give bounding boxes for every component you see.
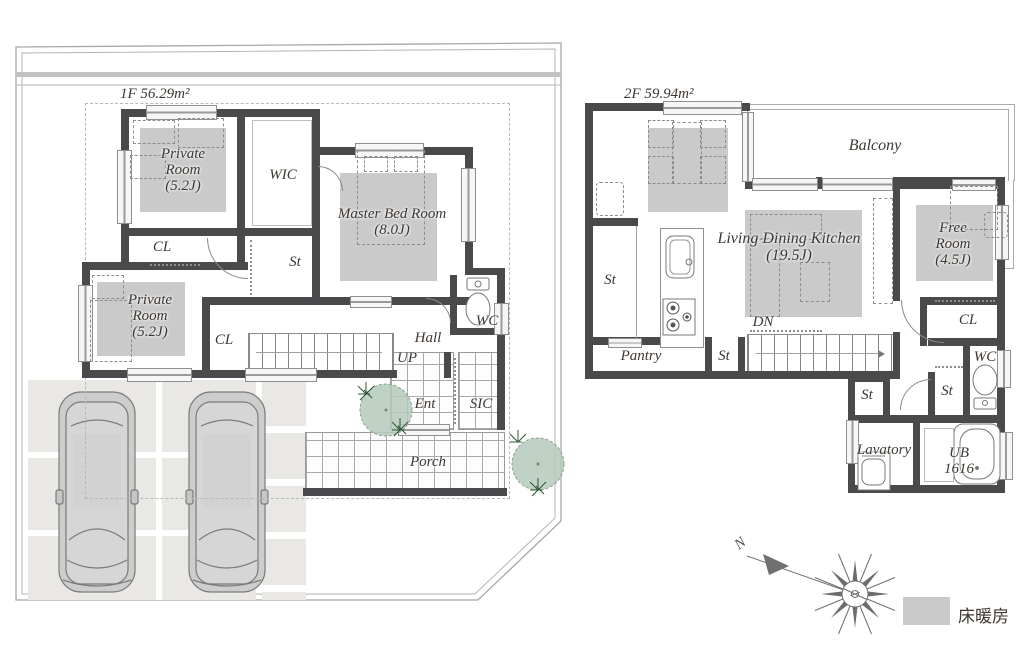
label-storage-left: St xyxy=(604,272,616,288)
label-closet-upper: CL xyxy=(153,239,171,255)
floor2-area-label: 2F 59.94m² xyxy=(624,86,694,102)
label-balcony: Balcony xyxy=(849,137,901,154)
label-wc-1f: WC xyxy=(476,313,499,329)
stair-handrail xyxy=(750,330,822,332)
tv-board xyxy=(873,198,893,304)
wall xyxy=(129,228,245,236)
window xyxy=(350,296,392,308)
tree xyxy=(502,428,582,508)
window xyxy=(742,112,754,182)
window xyxy=(245,368,317,382)
furniture-shelf xyxy=(178,118,224,148)
label-shoe-closet: SIC xyxy=(470,396,493,412)
floor1-area-label: 1F 56.29m² xyxy=(120,86,190,102)
coffee-table xyxy=(800,262,830,302)
dining-table xyxy=(672,122,702,184)
floor-plan-canvas: 1F 56.29m² Private Room (5.2J) WIC Maste… xyxy=(0,0,1024,651)
window xyxy=(461,168,476,242)
closet-door xyxy=(150,264,200,266)
wall xyxy=(444,352,451,378)
wall xyxy=(913,423,920,485)
furniture-desk xyxy=(133,120,175,144)
closet-door xyxy=(935,300,995,302)
wall xyxy=(585,218,638,226)
furniture-pillow xyxy=(364,156,388,172)
window xyxy=(608,338,642,348)
window xyxy=(127,368,192,382)
stove xyxy=(660,297,700,339)
label-private-room-upper: Private Room (5.2J) xyxy=(149,146,217,195)
legend-floor-heating-label: 床暖房 xyxy=(958,602,1009,627)
toilet xyxy=(968,362,1002,414)
dining-chair xyxy=(648,120,674,148)
wall xyxy=(202,297,210,378)
label-private-room-lower: Private Room (5.2J) xyxy=(116,292,184,341)
stair-rail xyxy=(256,352,382,353)
label-ldk: Living Dining Kitchen (19.5J) xyxy=(717,230,860,265)
staircase-down xyxy=(747,334,895,374)
stair-arrow xyxy=(878,350,885,358)
wall xyxy=(237,109,245,236)
compass-rose: N xyxy=(735,532,910,647)
accordion-door xyxy=(935,366,963,368)
wall xyxy=(450,275,457,335)
kitchen-sink xyxy=(662,232,702,284)
wall xyxy=(497,268,505,430)
label-lavatory: Lavatory xyxy=(857,442,911,458)
furniture-pillow xyxy=(394,156,418,172)
window xyxy=(822,178,893,191)
label-pantry: Pantry xyxy=(621,348,662,364)
label-free-room: Free Room (4.5J) xyxy=(927,220,979,269)
label-down: DN xyxy=(753,314,774,330)
window xyxy=(663,101,742,115)
porch-edge xyxy=(303,488,507,496)
accordion-door xyxy=(454,358,456,424)
wall xyxy=(202,297,245,305)
wall xyxy=(893,332,900,379)
dining-chair xyxy=(700,120,726,148)
stair-rail xyxy=(756,353,880,354)
label-wic: WIC xyxy=(269,167,297,183)
wall xyxy=(245,228,320,236)
label-master-bedroom: Master Bed Room (8.0J) xyxy=(338,206,446,238)
shoe-closet-floor xyxy=(458,352,499,430)
wall xyxy=(893,189,900,301)
free-room-chair xyxy=(984,212,1008,238)
dining-chair xyxy=(700,156,726,184)
label-porch: Porch xyxy=(410,454,446,470)
label-closet-2f: CL xyxy=(959,312,977,328)
label-storage-mid: St xyxy=(718,348,730,364)
label-unit-bath: UB 1616 xyxy=(944,445,974,477)
label-storage-1f: St xyxy=(289,254,301,270)
closet-door xyxy=(250,240,252,295)
label-storage-bath: St xyxy=(941,383,953,399)
refrigerator xyxy=(596,182,624,216)
label-up: UP xyxy=(397,350,417,366)
window xyxy=(752,178,818,191)
dining-chair xyxy=(648,156,674,184)
tree xyxy=(348,372,428,452)
label-closet-lower: CL xyxy=(215,332,233,348)
label-hall: Hall xyxy=(415,330,442,346)
wall xyxy=(883,375,890,420)
storage-partition xyxy=(636,226,637,338)
legend-floor-heating-swatch xyxy=(903,597,950,625)
label-wc-2f: WC xyxy=(974,349,997,365)
label-storage-hall: St xyxy=(861,387,873,403)
